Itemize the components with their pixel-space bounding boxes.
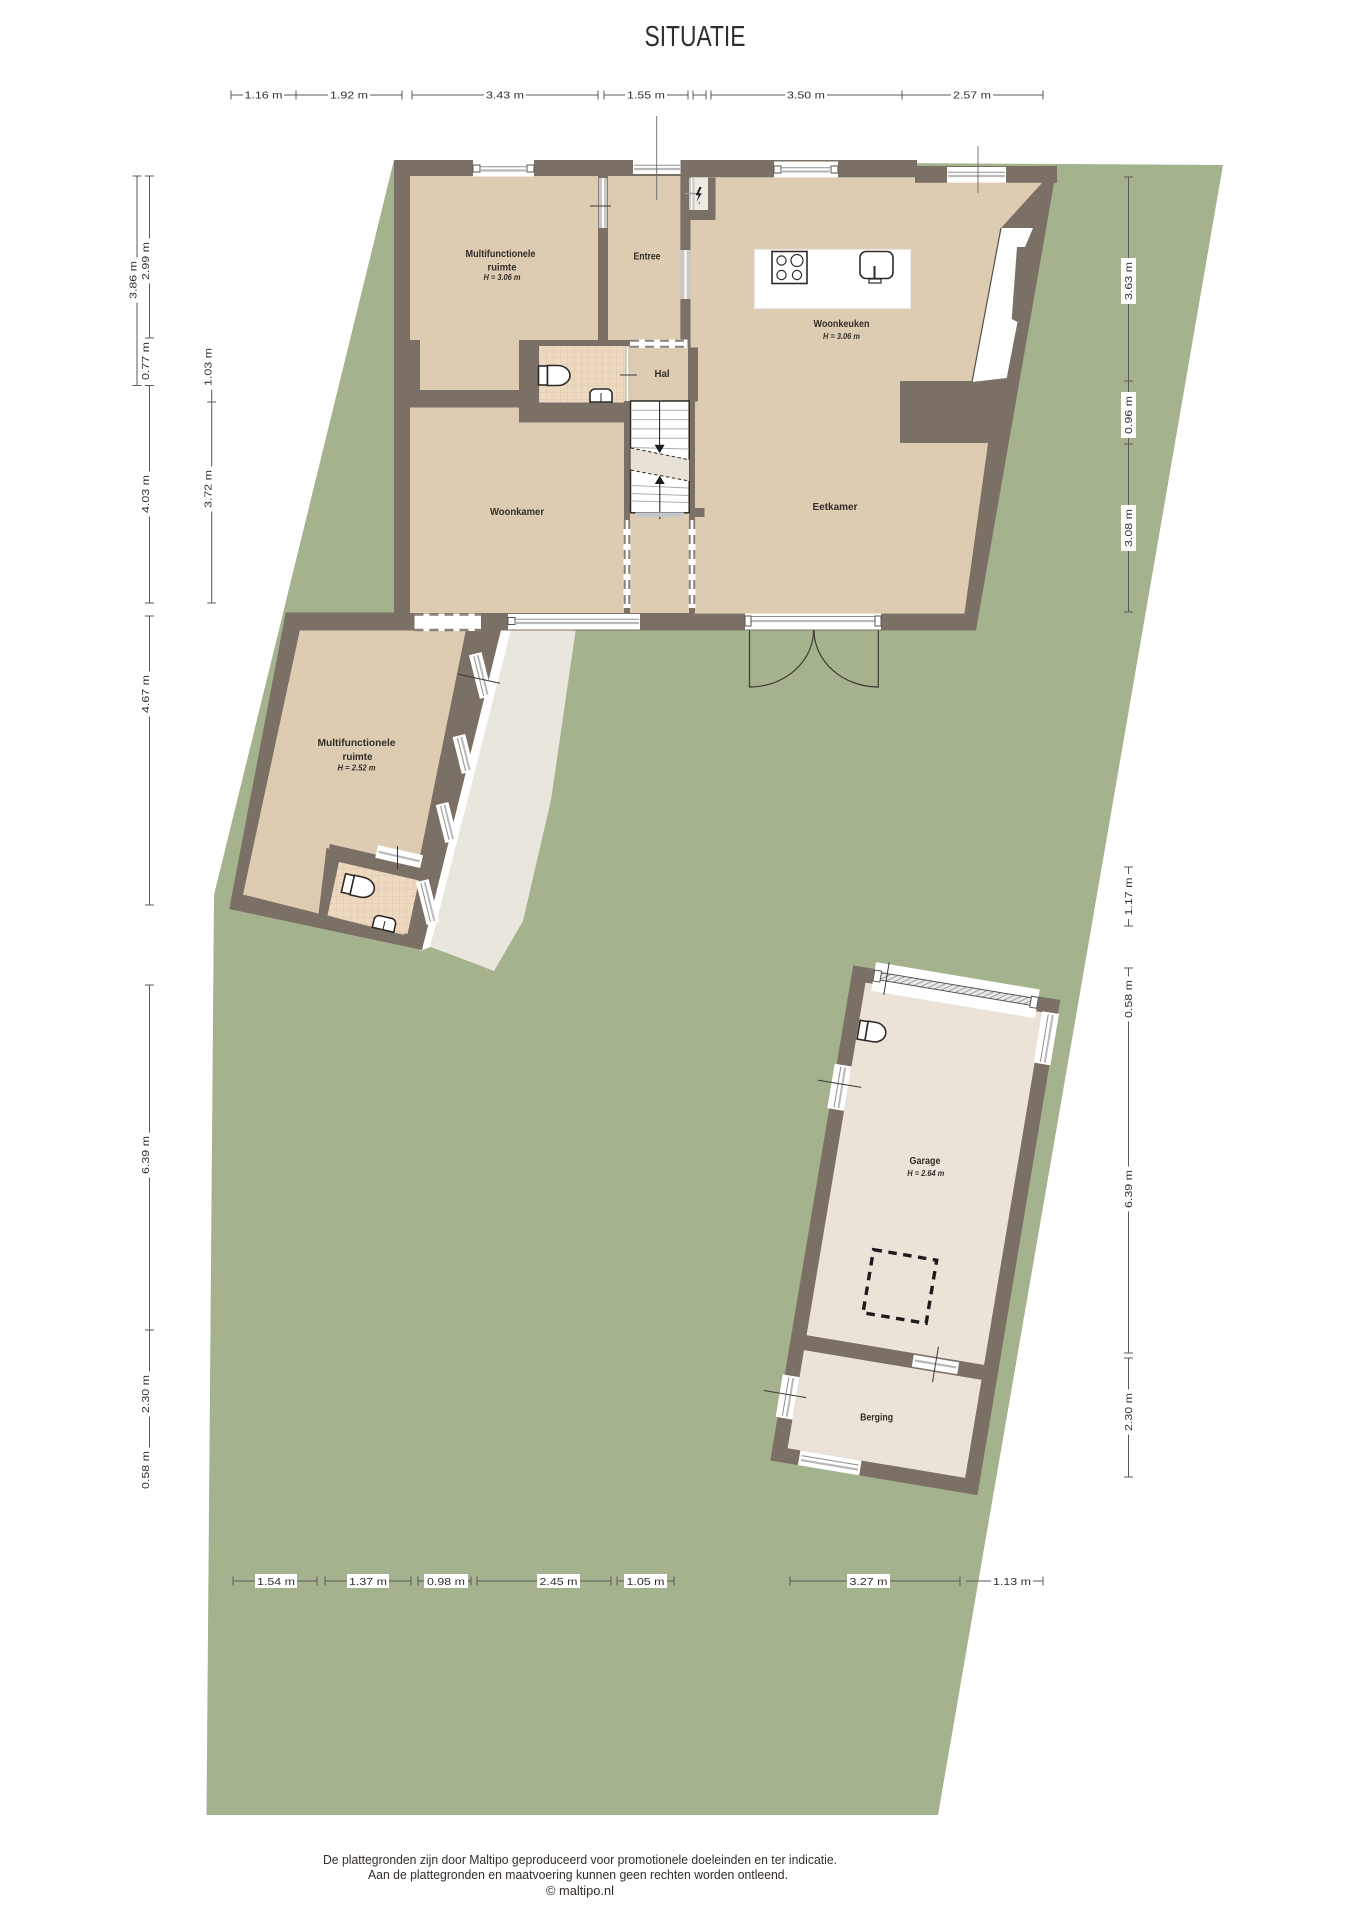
- svg-text:1.13 m: 1.13 m: [993, 1576, 1031, 1588]
- svg-text:Multifunctionele: Multifunctionele: [466, 248, 536, 260]
- svg-text:ruimte: ruimte: [343, 751, 373, 763]
- svg-text:1.17 m: 1.17 m: [1123, 877, 1135, 915]
- svg-text:2.57 m: 2.57 m: [953, 90, 991, 102]
- svg-text:1.16 m: 1.16 m: [245, 90, 283, 102]
- svg-text:3.72 m: 3.72 m: [203, 470, 215, 508]
- svg-text:2.45 m: 2.45 m: [540, 1576, 578, 1588]
- svg-text:3.50 m: 3.50 m: [787, 90, 825, 102]
- svg-text:H = 3.06 m: H = 3.06 m: [823, 332, 860, 341]
- svg-text:6.39 m: 6.39 m: [1123, 1170, 1135, 1208]
- svg-text:© maltipo.nl: © maltipo.nl: [546, 1883, 614, 1898]
- svg-text:0.58 m: 0.58 m: [140, 1451, 152, 1489]
- svg-text:Berging: Berging: [860, 1412, 893, 1424]
- svg-text:0.58 m: 0.58 m: [1123, 980, 1135, 1018]
- svg-text:H = 2.64 m: H = 2.64 m: [907, 1169, 944, 1178]
- svg-text:Woonkamer: Woonkamer: [490, 506, 544, 518]
- svg-text:3.08 m: 3.08 m: [1123, 509, 1135, 547]
- svg-text:0.98 m: 0.98 m: [427, 1576, 465, 1588]
- svg-text:1.37 m: 1.37 m: [349, 1576, 387, 1588]
- svg-text:3.27 m: 3.27 m: [850, 1576, 888, 1588]
- svg-text:De plattegronden zijn door Mal: De plattegronden zijn door Maltipo gepro…: [323, 1852, 837, 1867]
- svg-text:H = 3.06 m: H = 3.06 m: [484, 273, 521, 282]
- svg-text:Hal: Hal: [655, 368, 670, 380]
- svg-text:0.77 m: 0.77 m: [140, 342, 152, 380]
- svg-text:H = 2.52 m: H = 2.52 m: [338, 764, 376, 773]
- svg-text:2.99 m: 2.99 m: [140, 242, 152, 280]
- svg-text:1.03 m: 1.03 m: [203, 348, 215, 386]
- svg-text:Woonkeuken: Woonkeuken: [814, 318, 870, 330]
- svg-text:4.67 m: 4.67 m: [140, 675, 152, 713]
- svg-text:Garage: Garage: [910, 1155, 941, 1167]
- svg-text:4.03 m: 4.03 m: [140, 475, 152, 513]
- svg-text:2.30 m: 2.30 m: [1123, 1393, 1135, 1431]
- svg-text:1.55 m: 1.55 m: [627, 90, 665, 102]
- svg-text:SITUATIE: SITUATIE: [645, 21, 746, 53]
- svg-text:3.63 m: 3.63 m: [1123, 262, 1135, 300]
- svg-text:6.39 m: 6.39 m: [140, 1136, 152, 1174]
- svg-text:Multifunctionele: Multifunctionele: [318, 737, 396, 749]
- svg-text:3.86 m: 3.86 m: [128, 261, 140, 299]
- svg-text:1.54 m: 1.54 m: [257, 1576, 295, 1588]
- svg-text:Aan de plattegronden en maatvo: Aan de plattegronden en maatvoering kunn…: [368, 1867, 788, 1882]
- svg-text:1.92 m: 1.92 m: [330, 90, 368, 102]
- svg-text:Entree: Entree: [634, 251, 661, 263]
- svg-text:Eetkamer: Eetkamer: [813, 501, 858, 513]
- svg-text:1.05 m: 1.05 m: [627, 1576, 665, 1588]
- svg-text:2.30 m: 2.30 m: [140, 1375, 152, 1413]
- svg-text:ruimte: ruimte: [488, 262, 517, 274]
- svg-text:0.96 m: 0.96 m: [1123, 396, 1135, 434]
- svg-text:3.43 m: 3.43 m: [486, 90, 524, 102]
